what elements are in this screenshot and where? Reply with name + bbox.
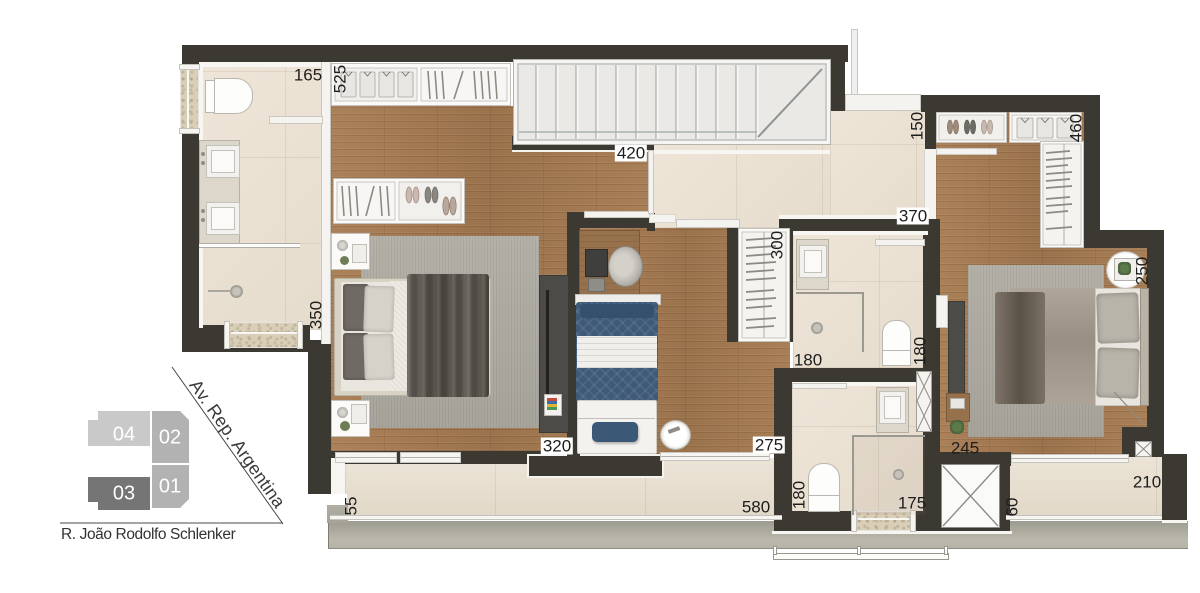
svg-text:03: 03 [113,482,135,504]
svg-text:04: 04 [113,423,135,445]
svg-text:02: 02 [159,426,181,448]
svg-text:01: 01 [159,475,181,497]
